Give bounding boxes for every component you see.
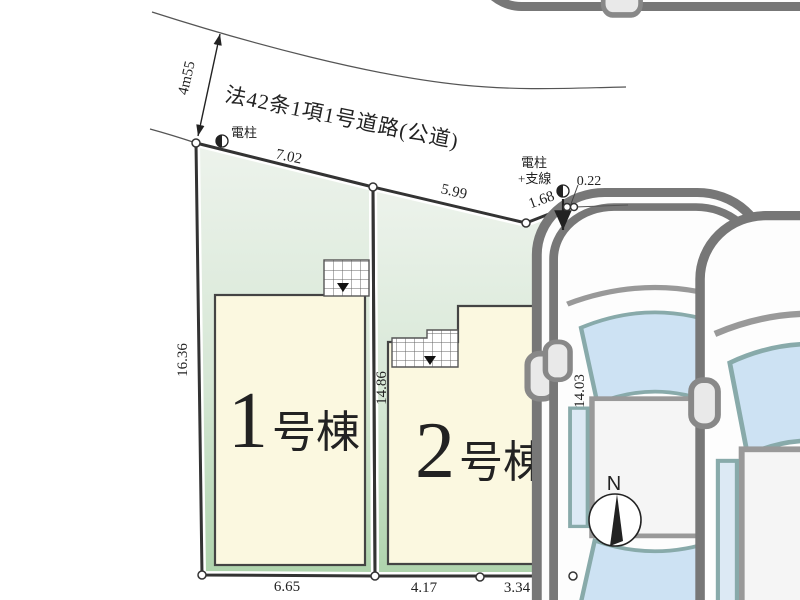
car-lot2-right — [470, 0, 800, 15]
vertex-marker — [192, 139, 200, 147]
vertex-marker — [476, 573, 484, 581]
road-lower-edge — [150, 129, 196, 143]
pole-right-label-line2: +支線 — [518, 171, 551, 186]
vertex-marker — [564, 204, 571, 211]
building-2-number: 2 — [415, 407, 455, 495]
compass-north-label: N — [607, 473, 621, 495]
road-upper-edge — [152, 12, 626, 89]
dim-bottom-seg1: 6.65 — [274, 579, 300, 595]
vertex-marker — [571, 204, 578, 211]
vertex-marker — [371, 572, 379, 580]
dim-top-seg4: 0.22 — [577, 174, 602, 189]
dim-bottom-seg2: 4.17 — [411, 580, 438, 596]
approach-grid-1 — [324, 260, 369, 296]
road-label: 法42条1項1号道路(公道) — [223, 82, 461, 153]
road-group: 法42条1項1号道路(公道) — [150, 12, 626, 153]
site-plan-page: 法42条1項1号道路(公道) 4m55 1 号棟 2 号棟 — [0, 0, 800, 600]
dim-right-side: 14.03 — [572, 374, 588, 408]
dim-bottom-seg3: 3.34 — [504, 580, 531, 596]
car-lot2-left — [691, 216, 800, 600]
building-1-suffix: 号棟 — [272, 408, 360, 457]
road-width-label: 4m55 — [175, 60, 198, 97]
pole-top-label: 電柱 — [231, 125, 257, 140]
building-1-number: 1 — [228, 377, 268, 465]
road-width-group: 4m55 — [175, 34, 220, 136]
dim-left-side: 16.36 — [175, 343, 191, 377]
site-plan-drawing: 法42条1項1号道路(公道) 4m55 1 号棟 2 号棟 — [0, 0, 800, 600]
vertex-marker — [522, 219, 530, 227]
vertex-marker — [198, 571, 206, 579]
pole-right-label-line1: 電柱 — [521, 155, 547, 170]
vertex-marker — [569, 572, 577, 580]
pole-top-group: 電柱 — [216, 125, 257, 147]
road-width-arrow — [198, 34, 220, 136]
dim-middle: 14.86 — [374, 371, 390, 405]
vertex-marker — [369, 183, 377, 191]
